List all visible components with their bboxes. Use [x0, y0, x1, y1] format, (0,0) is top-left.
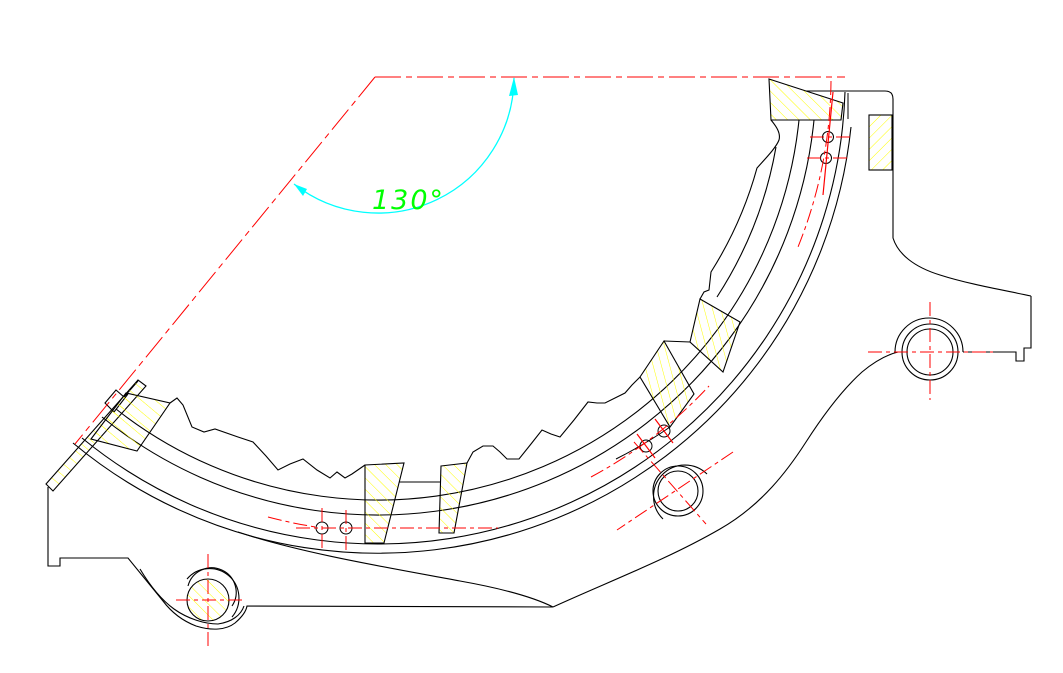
teeth-upper-smooth	[700, 120, 779, 299]
tooth-profile	[105, 120, 779, 482]
bosses	[187, 324, 958, 621]
dimension-arrow-top	[509, 77, 518, 96]
tooth-root-arc	[717, 147, 776, 297]
wedge-key-5	[690, 299, 740, 372]
right-arm-notch	[963, 296, 1031, 361]
teeth-left-section	[170, 398, 365, 478]
teeth-mid-section	[467, 377, 640, 463]
wedge-gap-line	[664, 341, 690, 342]
part-outline	[48, 91, 1031, 629]
cad-section-drawing: 130°	[0, 0, 1063, 673]
centerlines	[75, 77, 993, 649]
angle-dimension: 130°	[294, 77, 518, 216]
hatched-wedges	[46, 79, 892, 543]
band-pitch-arc-segment	[616, 427, 670, 459]
wedge-key-4	[640, 341, 694, 427]
band-arc-inner-1	[116, 120, 799, 500]
mid-boss-bore-inner	[658, 471, 698, 511]
mid-boss-bore-outer	[653, 466, 703, 516]
mid-boss-centerline-tangent	[617, 452, 733, 530]
dimension-arrow-left	[294, 184, 307, 196]
wedge-key-2	[365, 463, 404, 543]
angle-dimension-label: 130°	[372, 185, 445, 216]
pitch-arc-centerline-1	[268, 517, 316, 527]
construction-line-diagonal	[75, 77, 375, 444]
lug-section-block	[869, 115, 892, 170]
silhouette-right-web	[553, 352, 898, 607]
wedge-key-3	[439, 463, 467, 533]
